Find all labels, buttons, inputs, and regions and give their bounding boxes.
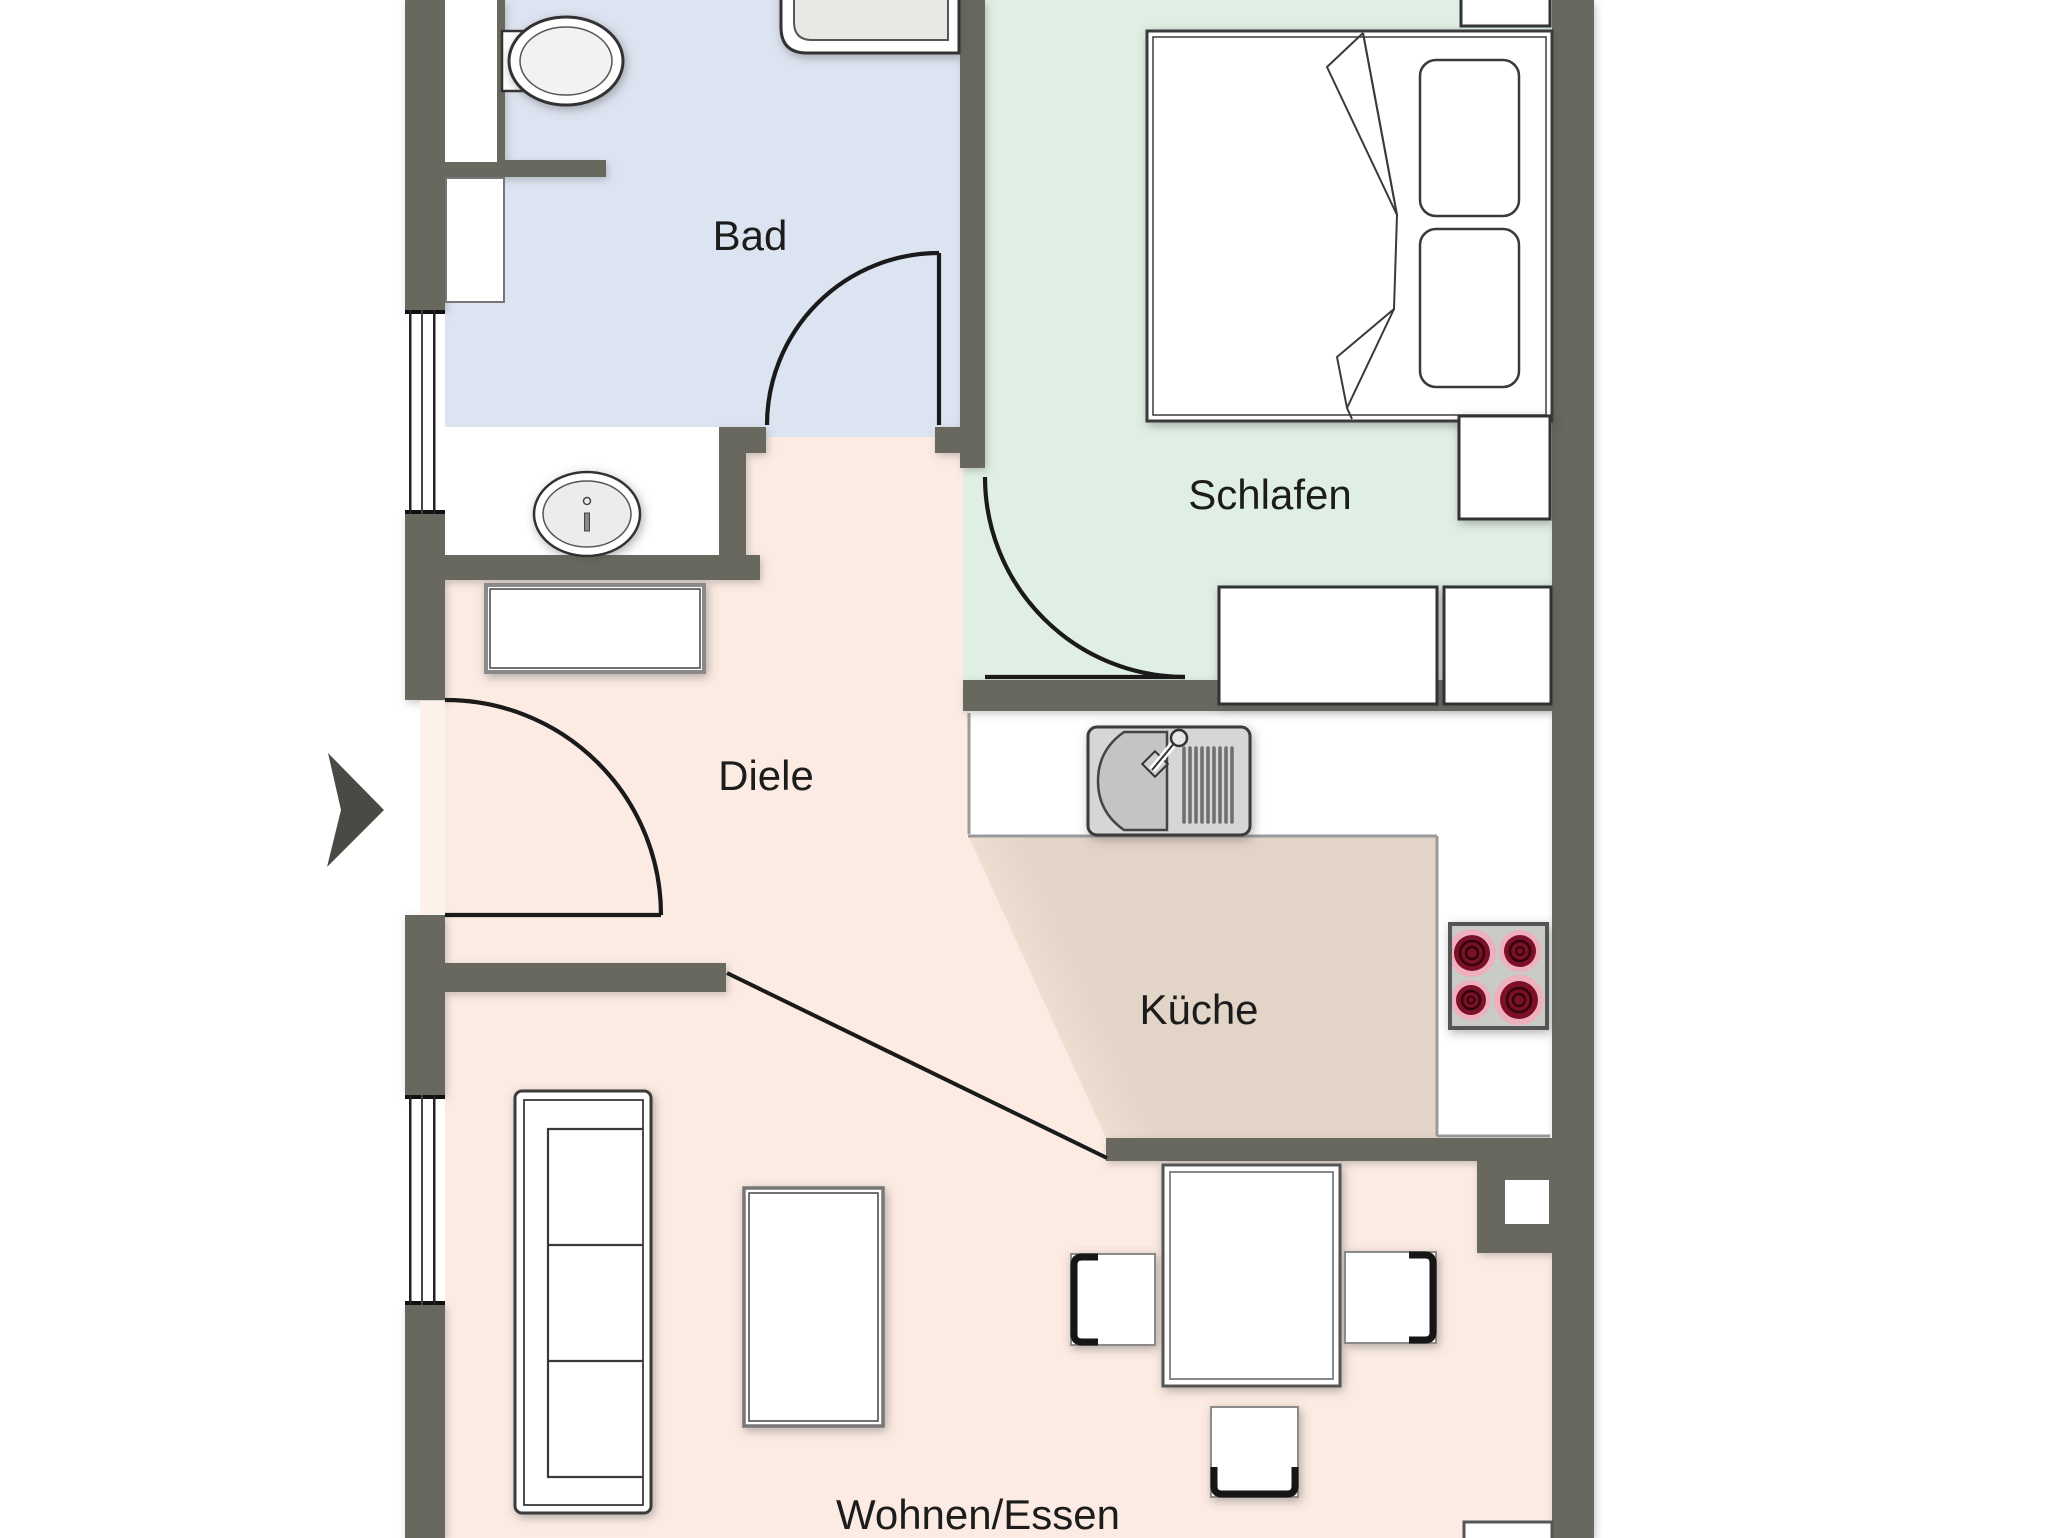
svg-text:Diele: Diele (718, 752, 814, 799)
svg-text:Küche: Küche (1139, 986, 1258, 1033)
svg-text:Bad: Bad (713, 212, 788, 259)
svg-text:Wohnen/Essen: Wohnen/Essen (836, 1491, 1120, 1538)
svg-text:Schlafen: Schlafen (1188, 471, 1351, 518)
